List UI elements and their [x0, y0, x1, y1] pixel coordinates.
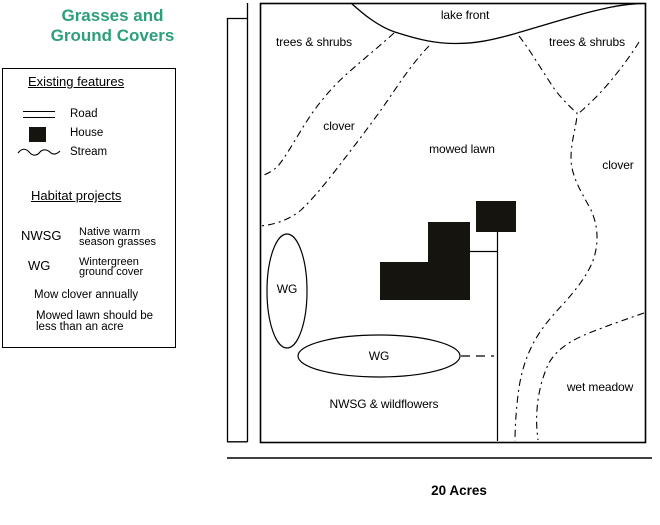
legend-house-label: House	[70, 127, 103, 139]
house-main	[380, 222, 470, 300]
legend-existing-heading: Existing features	[28, 74, 124, 89]
legend-nwsg-desc: Native warm season grasses	[79, 227, 156, 247]
page-title-line1: Grasses and	[0, 6, 225, 26]
label-mowed-lawn: mowed lawn	[429, 142, 495, 156]
legend-road-label: Road	[70, 108, 98, 120]
label-clover-left: clover	[323, 119, 354, 133]
label-trees-shrubs-right: trees & shrubs	[549, 35, 625, 49]
house-symbol	[29, 127, 46, 142]
legend-box: Existing features Road House Stream Habi…	[2, 68, 176, 348]
page-title-line2: Ground Covers	[0, 26, 225, 46]
acreage-label: 20 Acres	[431, 483, 487, 498]
legend-nwsg-desc-line2: season grasses	[79, 237, 156, 247]
legend-note-lawn-line1: Mowed lawn should be	[36, 311, 153, 322]
legend-nwsg-abbr: NWSG	[21, 228, 61, 243]
legend-wg-desc: Wintergreen ground cover	[79, 257, 143, 277]
legend-note-lawn-line2: less than an acre	[36, 322, 153, 333]
label-nwsg-wildflowers: NWSG & wildflowers	[330, 397, 439, 411]
road-symbol	[23, 111, 55, 118]
legend-habitat-heading: Habitat projects	[31, 188, 121, 203]
label-wg-vertical: WG	[277, 282, 297, 296]
label-wg-horizontal: WG	[369, 349, 389, 363]
label-trees-shrubs-left: trees & shrubs	[276, 35, 352, 49]
legend-wg-desc-line2: ground cover	[79, 267, 143, 277]
house-outbuilding	[476, 201, 516, 232]
legend-note-clover: Mow clover annually	[34, 290, 138, 301]
label-clover-right: clover	[602, 158, 633, 172]
legend-wg-abbr: WG	[28, 258, 50, 273]
page-title: Grasses and Ground Covers	[0, 6, 225, 46]
label-lake-front: lake front	[441, 8, 489, 22]
legend-note-lawn: Mowed lawn should be less than an acre	[36, 311, 153, 332]
label-wet-meadow: wet meadow	[567, 380, 633, 394]
road-left	[227, 3, 248, 442]
legend-stream-label: Stream	[70, 146, 107, 158]
stream-symbol	[16, 145, 62, 159]
plan-diagram: Grasses and Ground Covers Existing featu…	[0, 0, 660, 525]
